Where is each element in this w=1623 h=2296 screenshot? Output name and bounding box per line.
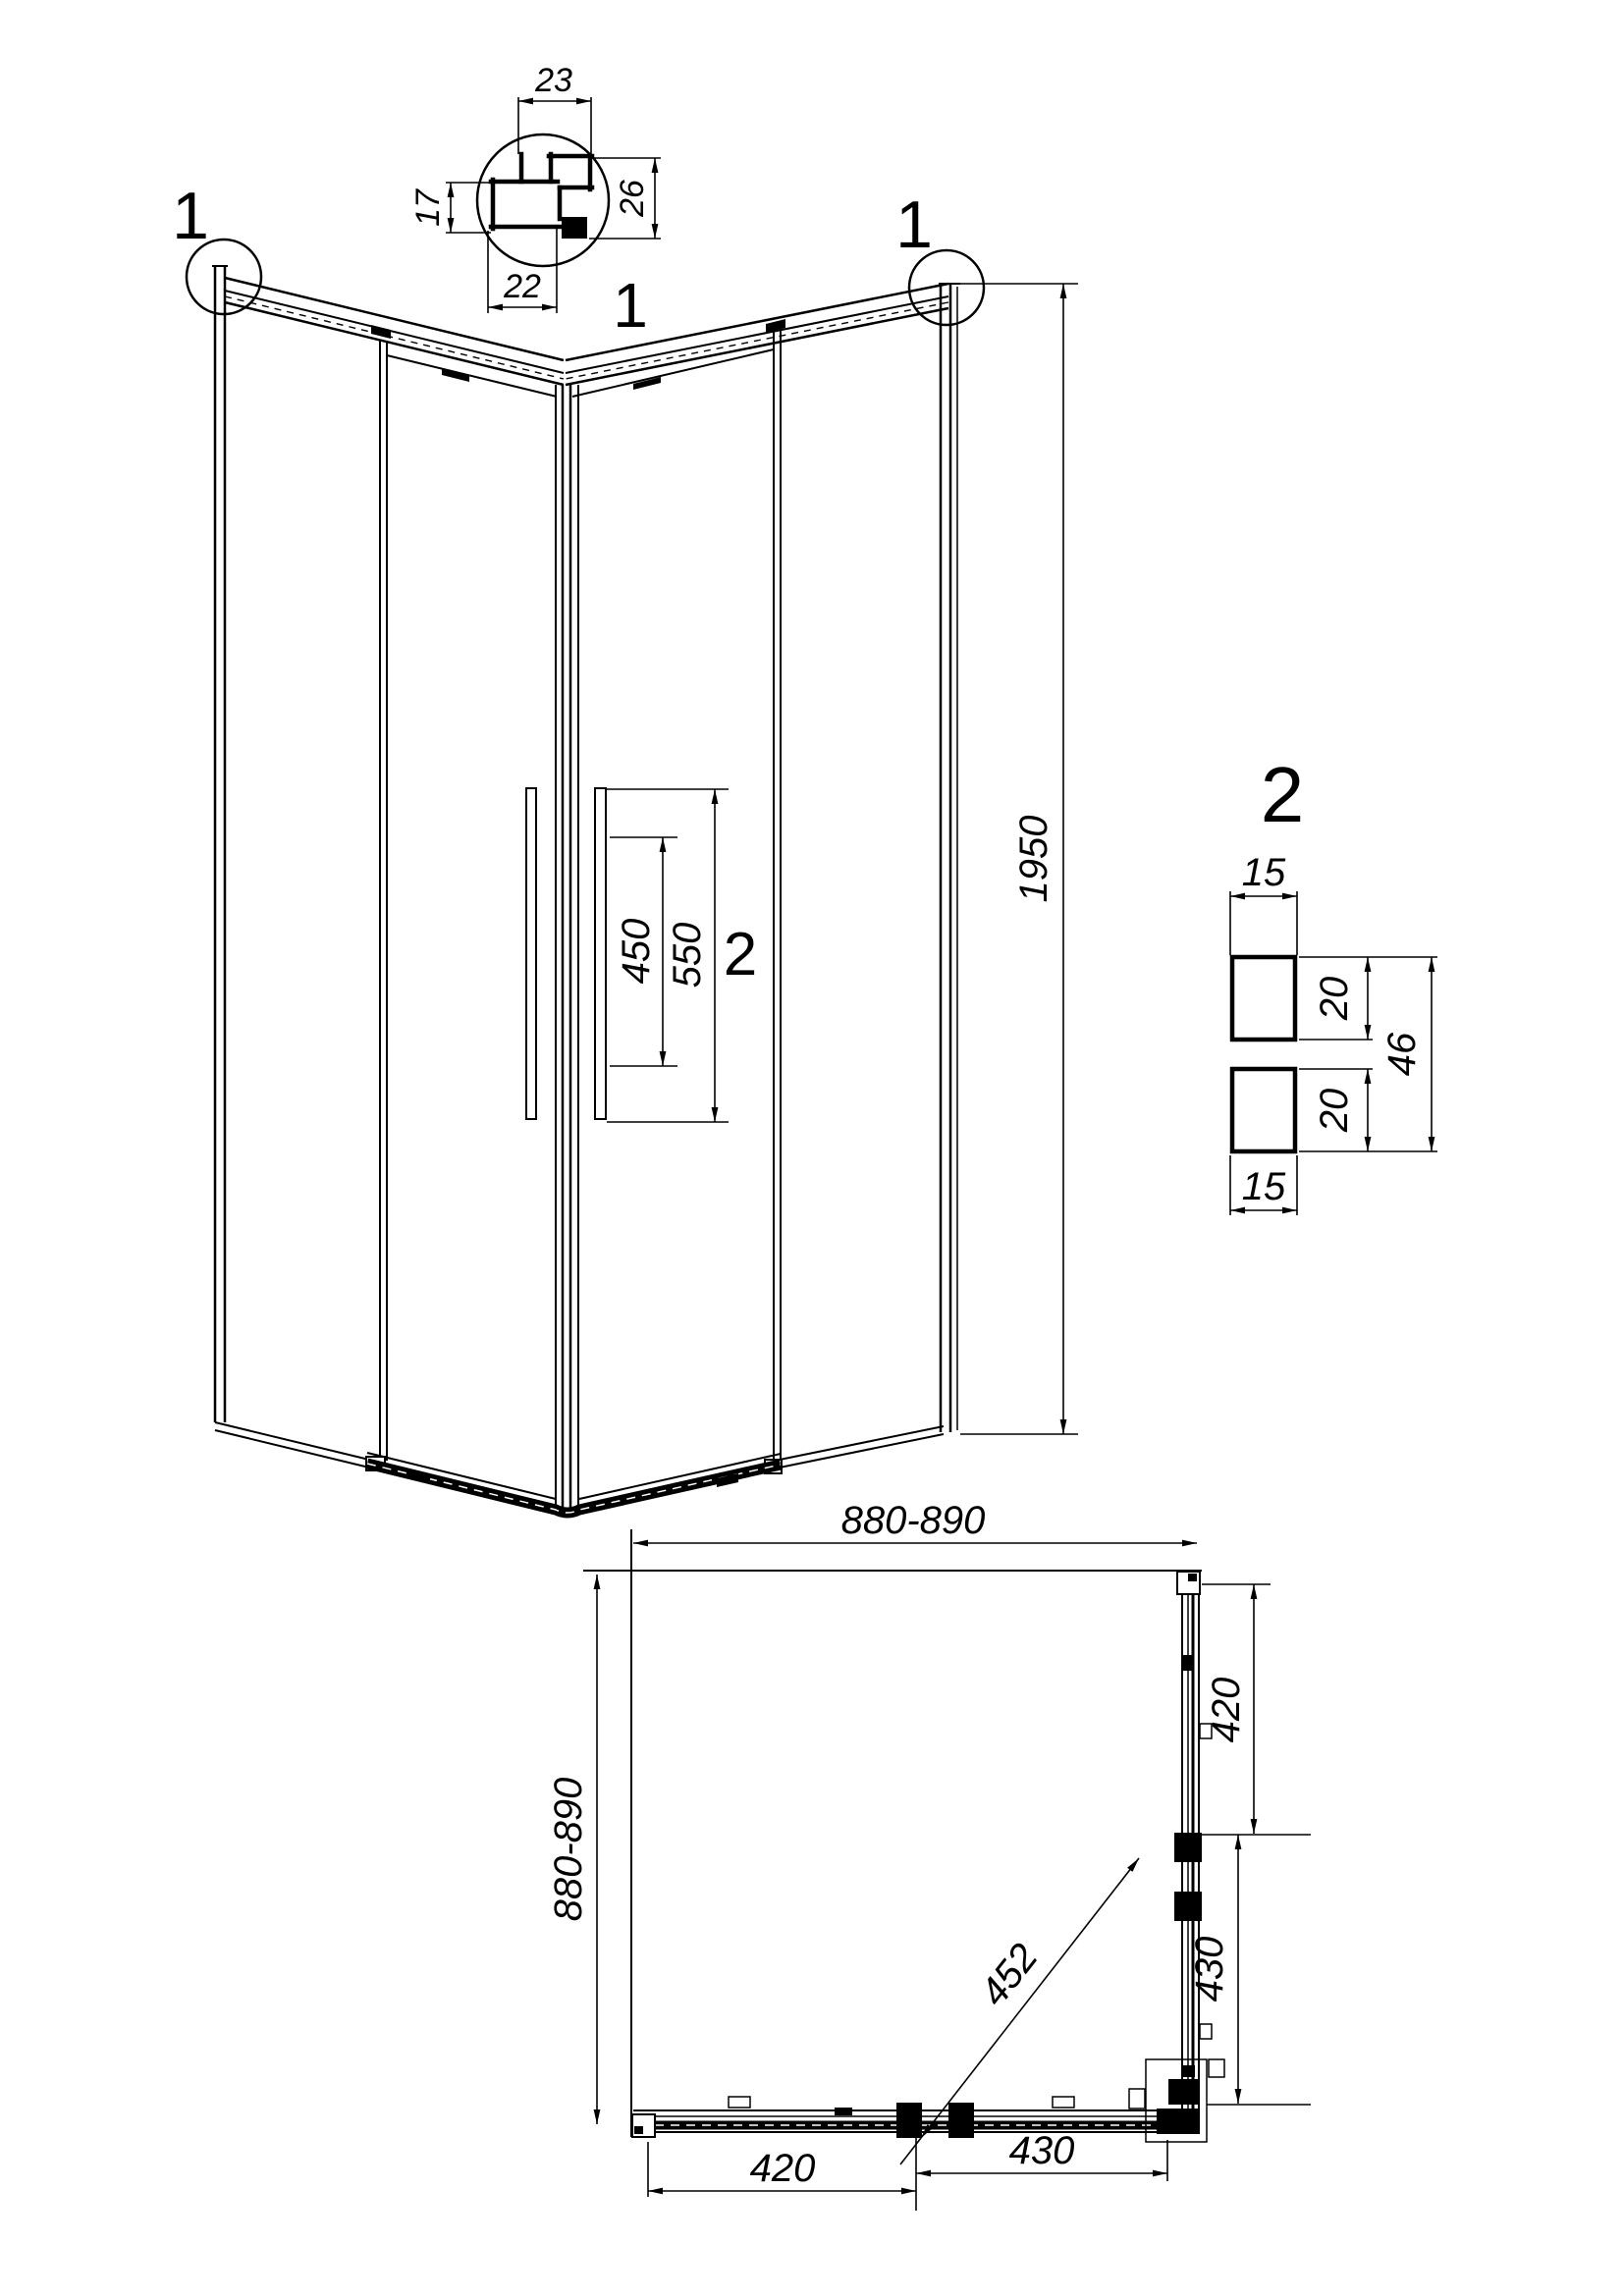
dim-22-label: 22 (503, 268, 541, 305)
shower-enclosure-technical-drawing: 1 1 450 550 2 1950 (0, 0, 1623, 2296)
plan-bottom-wall (632, 2089, 1200, 2138)
handle-section-upper-square (1232, 957, 1295, 1040)
dim-15-top: 15 (1230, 851, 1297, 955)
dim-1950: 1950 (960, 284, 1078, 1434)
dim-15-top-label: 15 (1242, 851, 1286, 894)
profile-section-shape (491, 154, 592, 239)
dim-right-420-label: 420 (1205, 1678, 1248, 1743)
dim-20-upper: 20 (1299, 957, 1437, 1040)
dim-diagonal-452: 452 (900, 1858, 1139, 2164)
dim-23-label: 23 (534, 62, 572, 99)
dim-46-label: 46 (1380, 1032, 1424, 1076)
dim-26-label: 26 (614, 180, 651, 218)
plan-right-wall (1174, 1572, 1212, 2132)
dim-20-lower-label: 20 (1313, 1089, 1356, 1134)
plan-view: 880-890 880-890 420 430 420 430 (547, 1499, 1311, 2211)
right-wall-lines (566, 284, 960, 1473)
dim-17-label: 17 (409, 188, 447, 227)
dim-20-upper-label: 20 (1313, 977, 1356, 1022)
door-handle-left (526, 788, 536, 1119)
dim-bottom-420-label: 420 (750, 2147, 816, 2190)
plan-right-door-roller (1174, 1833, 1202, 1862)
detail-2-number-label: 2 (1261, 751, 1305, 838)
dim-15-bottom-label: 15 (1242, 1165, 1286, 1208)
front-view: 1 1 450 550 2 1950 (172, 179, 1078, 1513)
dim-550-label: 550 (666, 923, 709, 988)
dim-46: 46 (1380, 957, 1432, 1151)
technical-drawing-page: 1 1 450 550 2 1950 (0, 0, 1623, 2296)
front-callout-1-left-label: 1 (172, 179, 209, 253)
handle-section-detail: 2 15 20 20 46 15 (1230, 751, 1437, 1215)
dim-plan-depth: 880-890 (547, 1575, 597, 2124)
front-callout-1-right-label: 1 (895, 187, 933, 262)
front-handle-detail-number-label: 2 (724, 921, 757, 988)
bottom-sill (367, 1453, 781, 1513)
dim-right-420: 420 (1202, 1584, 1271, 1834)
dim-22: 22 (488, 229, 557, 313)
handle-section-lower-square (1232, 1069, 1295, 1151)
dim-depth-label: 880-890 (547, 1778, 590, 1922)
dim-plan-width: 880-890 (633, 1499, 1197, 1543)
profile-detail: 23 17 26 22 1 (409, 62, 661, 341)
dim-right-430-label: 430 (1188, 1937, 1231, 2002)
plan-bottom-door-roller (896, 2103, 922, 2138)
dim-width-label: 880-890 (841, 1499, 986, 1542)
dim-450-label: 450 (615, 919, 658, 985)
dim-26: 26 (589, 158, 661, 239)
left-wall-lines (212, 266, 564, 1470)
dim-20-lower: 20 (1299, 1069, 1437, 1151)
dim-diagonal-452-label: 452 (972, 1936, 1047, 2014)
profile-detail-number-label: 1 (613, 270, 648, 341)
dim-bottom-430-label: 430 (1009, 2129, 1075, 2172)
dim-15-bottom: 15 (1230, 1155, 1297, 1215)
dim-23: 23 (518, 62, 591, 154)
dim-1950-label: 1950 (1012, 816, 1055, 903)
corner-post-lines (556, 385, 578, 1511)
door-handle-right (595, 788, 606, 1119)
dim-bottom-420: 420 (648, 2138, 916, 2211)
